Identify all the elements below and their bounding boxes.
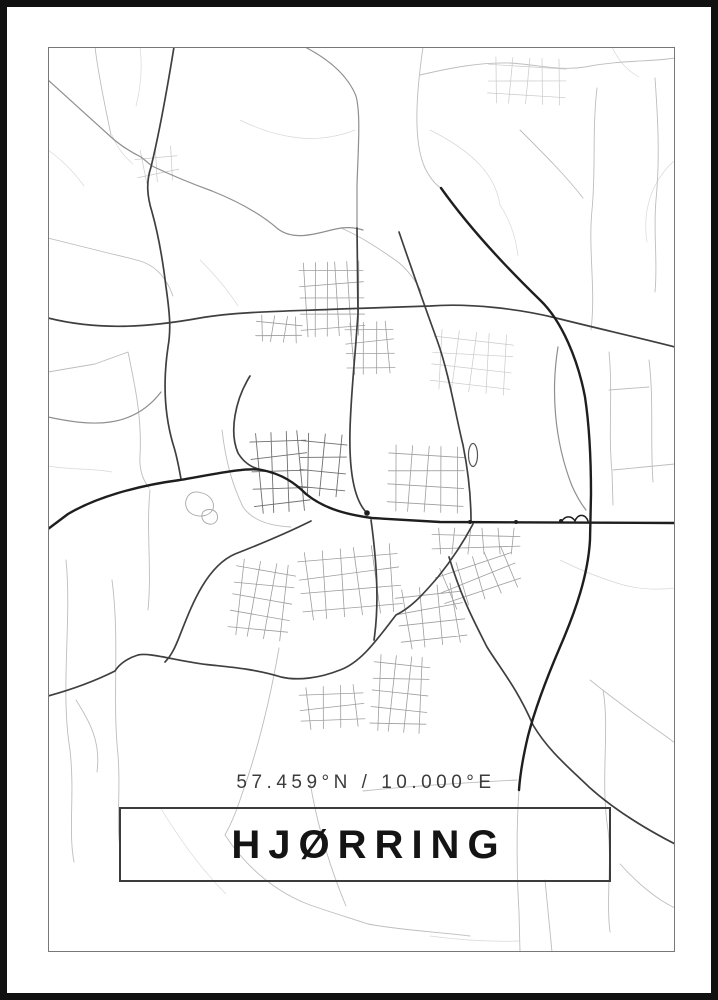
coordinates-label: 57.459°N / 10.000°E	[48, 772, 680, 794]
title-box: HJØRRING	[119, 807, 611, 882]
city-name-title: HJØRRING	[223, 825, 506, 865]
map-poster: 57.459°N / 10.000°E HJØRRING	[0, 0, 718, 1000]
